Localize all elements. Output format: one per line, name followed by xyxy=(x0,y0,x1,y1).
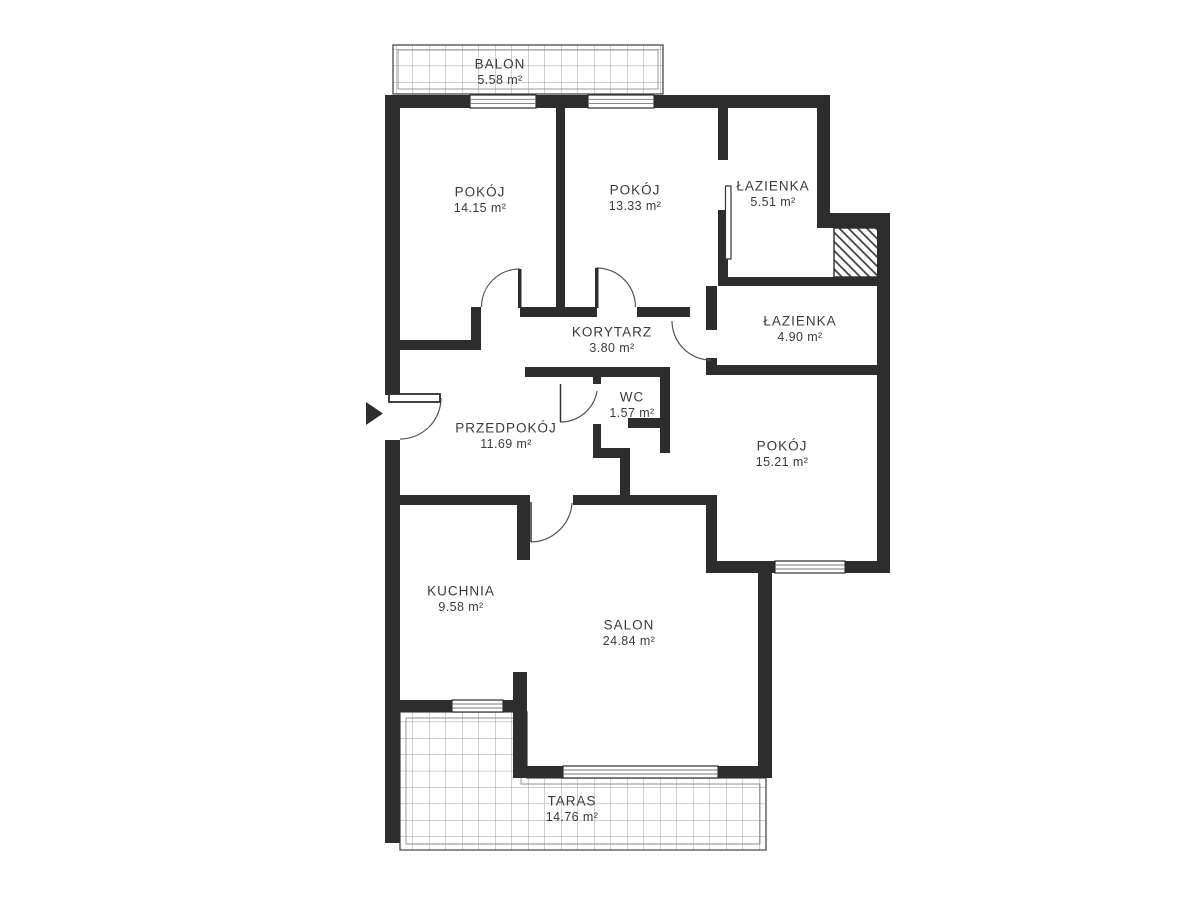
wall-segment xyxy=(718,766,772,778)
wall-segment xyxy=(593,424,601,450)
wall-segment xyxy=(471,307,481,350)
room-area: 24.84 m² xyxy=(603,634,656,648)
wall-segment xyxy=(706,495,717,573)
room-name: TARAS xyxy=(547,794,596,809)
window xyxy=(588,95,654,108)
wall-segment xyxy=(877,213,890,573)
room-area: 14.76 m² xyxy=(546,810,599,824)
wall-segment xyxy=(845,561,890,573)
entrance-arrow-icon xyxy=(366,402,383,425)
wall-segment xyxy=(593,377,601,384)
room-area: 4.90 m² xyxy=(777,330,822,344)
room-name: WC xyxy=(620,390,645,405)
terrace-grid xyxy=(400,712,766,850)
wall-segment xyxy=(718,108,728,160)
wall-segment xyxy=(817,95,830,228)
room-label-pokoj-3: POKÓJ15.21 m² xyxy=(756,439,809,470)
wall-segment xyxy=(637,307,690,317)
floor-plan: BALON5.58 m²POKÓJ14.15 m²POKÓJ13.33 m²ŁA… xyxy=(0,0,1200,900)
sliding-door-leaf xyxy=(726,186,732,259)
wall-segment xyxy=(385,95,400,395)
room-name: ŁAZIENKA xyxy=(763,314,836,329)
door-arc xyxy=(531,503,572,542)
terrace-border xyxy=(400,712,766,850)
shaft-hatch xyxy=(834,228,878,277)
wall-segment xyxy=(520,307,597,317)
room-name: SALON xyxy=(604,618,655,633)
balcony-grid xyxy=(393,45,663,94)
wall-segment xyxy=(706,286,717,330)
wall-segment xyxy=(400,340,481,350)
room-name: ŁAZIENKA xyxy=(736,179,809,194)
room-label-kuchnia: KUCHNIA9.58 m² xyxy=(427,584,495,615)
room-name: POKÓJ xyxy=(455,185,506,200)
wall-segment xyxy=(573,495,717,505)
wall-segment xyxy=(718,277,890,286)
wall-segment xyxy=(400,495,530,505)
door-leaf xyxy=(595,268,599,308)
room-label-salon: SALON24.84 m² xyxy=(603,618,656,649)
room-area: 11.69 m² xyxy=(480,437,532,451)
room-area: 9.58 m² xyxy=(438,600,483,614)
wall-segment xyxy=(513,672,527,778)
room-label-pokoj-1: POKÓJ14.15 m² xyxy=(454,185,507,216)
wall-segment xyxy=(517,495,530,560)
room-area: 14.15 m² xyxy=(454,201,507,215)
door-arc xyxy=(597,268,636,307)
door-arc xyxy=(672,321,711,360)
wall-segment xyxy=(620,448,630,503)
room-label-korytarz: KORYTARZ3.80 m² xyxy=(572,325,652,356)
room-name: BALON xyxy=(475,57,526,72)
room-name: POKÓJ xyxy=(757,439,808,454)
door-leaf xyxy=(518,269,522,308)
wall-segment xyxy=(385,440,400,843)
wall-segment xyxy=(556,108,565,312)
wall-segment xyxy=(660,367,670,453)
wall-segment xyxy=(654,95,830,108)
room-name: POKÓJ xyxy=(610,183,661,198)
room-area: 5.51 m² xyxy=(750,195,795,209)
entrance-door-leaf xyxy=(389,394,440,402)
room-label-lazienka-2: ŁAZIENKA4.90 m² xyxy=(763,314,836,345)
wall-segment xyxy=(758,561,772,778)
door-arc xyxy=(560,391,597,422)
door-arc xyxy=(400,398,441,439)
door-arc xyxy=(482,269,520,307)
room-name: KUCHNIA xyxy=(427,584,495,599)
wall-segment xyxy=(525,367,670,377)
window xyxy=(775,561,845,573)
wall-segment xyxy=(706,365,878,375)
wall-segment xyxy=(503,700,527,712)
window xyxy=(563,766,718,778)
wall-segment xyxy=(536,95,588,108)
room-label-wc: WC1.57 m² xyxy=(609,390,654,421)
room-area: 5.58 m² xyxy=(477,73,522,87)
window xyxy=(470,95,536,108)
window xyxy=(452,700,503,712)
room-area: 1.57 m² xyxy=(609,406,654,420)
wall-segment xyxy=(527,766,563,778)
room-name: KORYTARZ xyxy=(572,325,652,340)
room-area: 13.33 m² xyxy=(609,199,662,213)
room-name: PRZEDPOKÓJ xyxy=(455,421,557,436)
floor-plan-page: BALON5.58 m²POKÓJ14.15 m²POKÓJ13.33 m²ŁA… xyxy=(0,0,1200,900)
room-label-lazienka-1: ŁAZIENKA5.51 m² xyxy=(736,179,809,210)
balcony-border xyxy=(393,45,663,94)
room-area: 3.80 m² xyxy=(589,341,634,355)
room-label-przedpokoj: PRZEDPOKÓJ11.69 m² xyxy=(455,421,557,452)
room-label-pokoj-2: POKÓJ13.33 m² xyxy=(609,183,662,214)
room-area: 15.21 m² xyxy=(756,455,809,469)
